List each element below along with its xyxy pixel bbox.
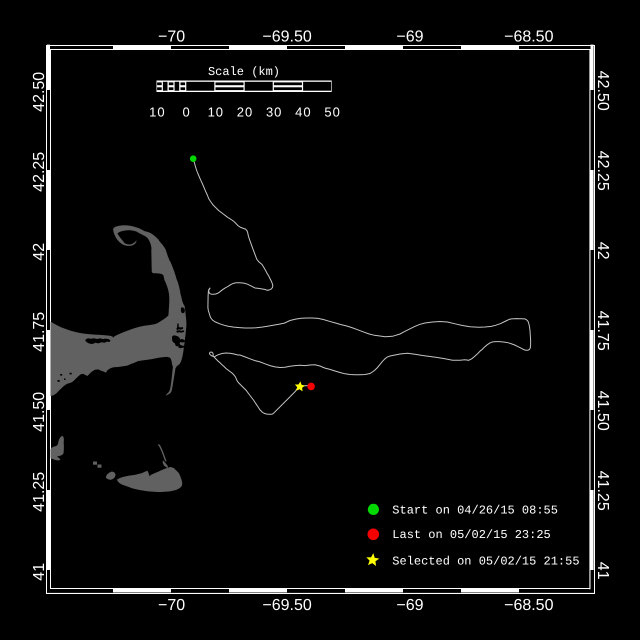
- svg-text:−69.50: −69.50: [262, 597, 311, 614]
- svg-text:0: 0: [182, 105, 190, 120]
- svg-text:20: 20: [237, 105, 253, 120]
- svg-text:−69: −69: [396, 597, 423, 614]
- svg-text:41.50: 41.50: [594, 391, 611, 431]
- svg-text:42: 42: [31, 243, 48, 261]
- svg-text:42.25: 42.25: [31, 152, 48, 192]
- svg-text:−69.50: −69.50: [262, 29, 311, 46]
- svg-text:Scale (km): Scale (km): [208, 65, 280, 79]
- svg-text:41.25: 41.25: [594, 471, 611, 511]
- svg-text:Start on 04/26/15 08:55: Start on 04/26/15 08:55: [392, 504, 558, 518]
- svg-text:41: 41: [594, 562, 611, 580]
- svg-text:−68.50: −68.50: [504, 597, 553, 614]
- svg-text:41: 41: [31, 563, 48, 581]
- svg-text:41.25: 41.25: [31, 472, 48, 512]
- svg-text:−68.50: −68.50: [504, 29, 553, 46]
- svg-text:40: 40: [295, 105, 311, 120]
- svg-text:30: 30: [266, 105, 282, 120]
- svg-text:−70: −70: [158, 29, 185, 46]
- svg-text:10: 10: [208, 105, 224, 120]
- svg-text:−70: −70: [158, 597, 185, 614]
- svg-text:41.75: 41.75: [594, 311, 611, 351]
- svg-text:42: 42: [594, 242, 611, 260]
- svg-text:42.25: 42.25: [594, 151, 611, 191]
- svg-text:41.50: 41.50: [31, 392, 48, 432]
- svg-text:50: 50: [324, 105, 340, 120]
- svg-text:42.50: 42.50: [31, 72, 48, 112]
- svg-text:Selected on 05/02/15 21:55: Selected on 05/02/15 21:55: [392, 554, 579, 568]
- svg-text:42.50: 42.50: [594, 71, 611, 111]
- svg-text:−69: −69: [396, 29, 423, 46]
- svg-text:41.75: 41.75: [31, 312, 48, 352]
- svg-text:10: 10: [149, 105, 165, 120]
- svg-text:Last on 05/02/15 23:25: Last on 05/02/15 23:25: [392, 528, 550, 542]
